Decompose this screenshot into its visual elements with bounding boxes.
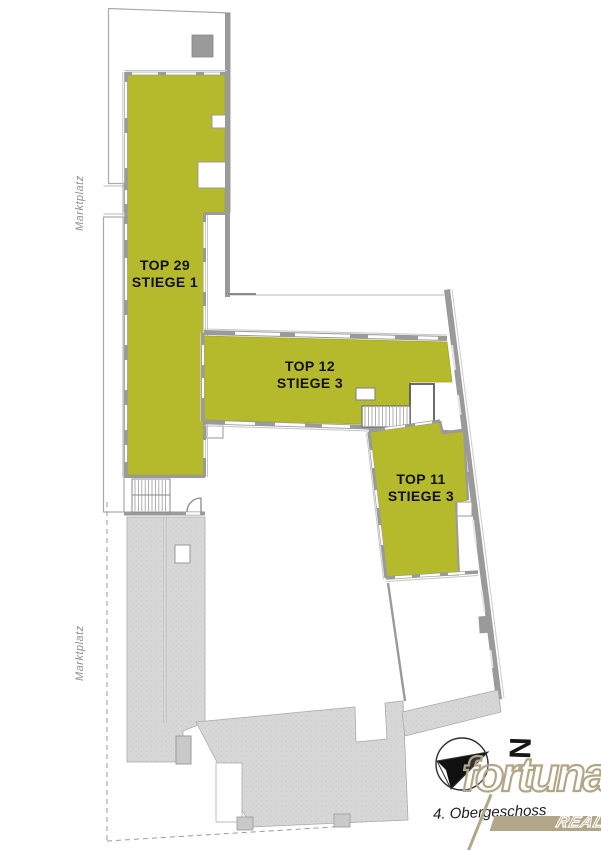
top29-staircase [132,479,201,512]
logo-real-text: REAL [554,814,601,832]
street-label-marktplatz-top: Marktplatz [74,167,86,231]
lower-roof-cut [216,763,242,822]
unit-number: TOP 12 [260,358,360,375]
terrace-pillar [334,814,350,827]
facade-notch [212,115,226,128]
floor-plan-canvas [0,0,601,850]
terrace-walkway [402,690,501,736]
unit-stiege: STIEGE 3 [371,488,471,505]
street-label-marktplatz-bottom: Marktplatz [74,617,86,681]
unit-label-top-12: TOP 12 STIEGE 3 [260,358,360,392]
logo-brand-text: fortuna [462,748,601,803]
unit-label-top-29: TOP 29 STIEGE 1 [115,257,215,291]
unit-stiege: STIEGE 1 [115,274,215,291]
light-shaft [198,162,226,188]
balcony [206,426,223,438]
terrace-pillar [176,736,191,764]
roof-shaft-block [192,35,213,57]
skylight [175,545,190,563]
unit-number: TOP 11 [371,471,471,488]
terrace-left-strip [127,517,205,762]
floorplan-page: Marktplatz Marktplatz TOP 29 STIEGE 1 TO… [0,0,601,850]
room-west-wall [388,583,405,701]
logo-real-bar: REAL [490,816,601,831]
wall-pier-block [478,616,491,634]
terrace-pillar [237,817,253,830]
unit-number: TOP 29 [115,257,215,274]
unit-label-top-11: TOP 11 STIEGE 3 [371,471,471,505]
door-swing-arc [187,498,201,512]
unit-stiege: STIEGE 3 [260,375,360,392]
fortuna-logo: fortuna REAL [452,742,601,850]
courtyard-boundary [228,294,444,295]
